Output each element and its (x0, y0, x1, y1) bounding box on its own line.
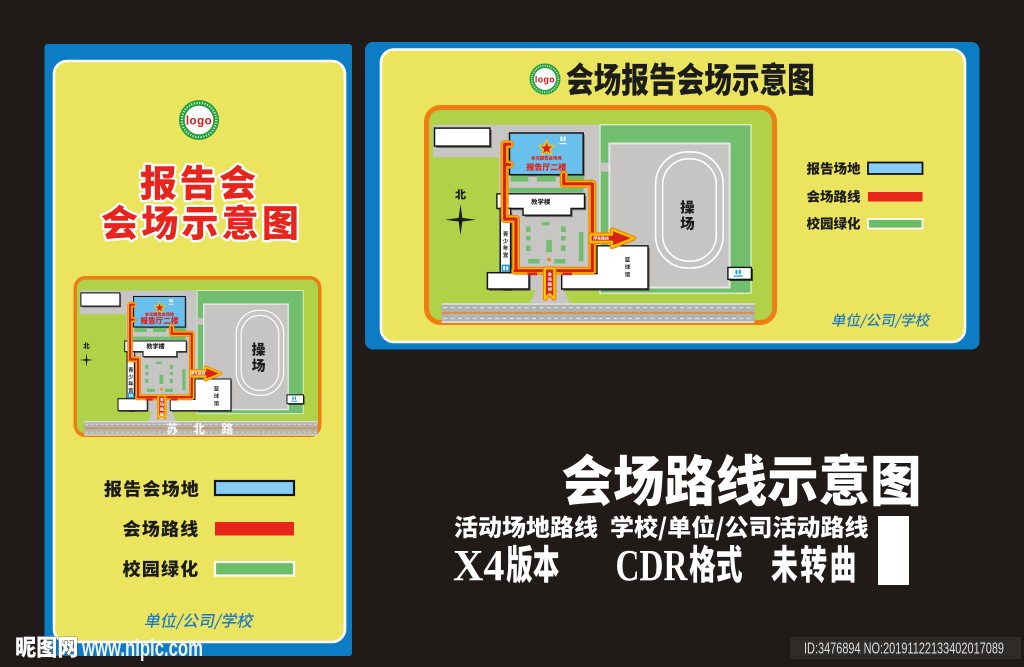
svg-text:logo: logo (186, 116, 212, 128)
svg-text:logo: logo (535, 75, 555, 85)
svg-text:X4: X4 (453, 541, 505, 590)
svg-text:ID:3476894 NO:2019112213340201: ID:3476894 NO:20191122133402017089 (804, 641, 1004, 658)
svg-text:CDR: CDR (616, 541, 689, 590)
svg-text:www.nipic.com: www.nipic.com (81, 635, 203, 662)
